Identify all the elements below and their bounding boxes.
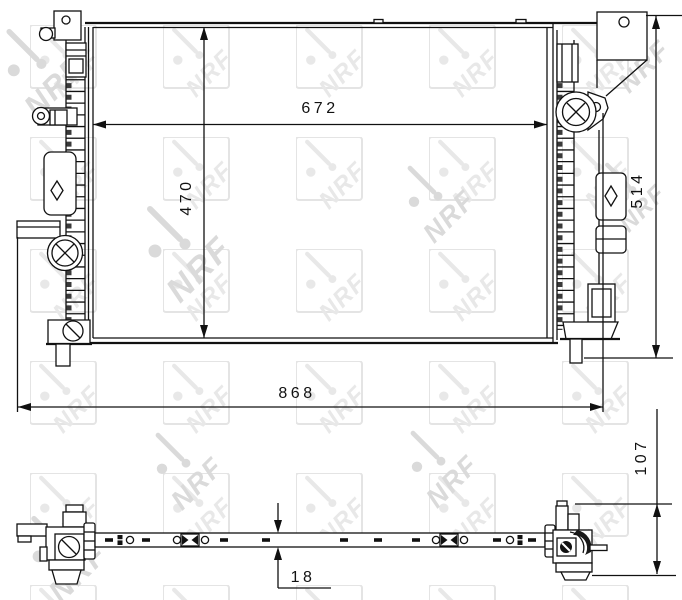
inlet-port [48, 236, 83, 271]
watermark-layer [0, 0, 682, 600]
dim-overall-width-label: 868 [278, 385, 315, 402]
dim-core-height-label: 470 [178, 178, 195, 215]
mounting-bracket-mid-right [596, 173, 626, 220]
mounting-bracket-lower-right [596, 226, 626, 253]
left-panel [44, 152, 76, 215]
mounting-bracket-lower-left [17, 221, 60, 238]
dim-core-depth-label: 18 [291, 569, 316, 586]
dim-overall-depth-label: 107 [633, 438, 650, 475]
clamp-detail [557, 44, 578, 82]
dim-core-width-label: 672 [301, 100, 338, 117]
core-bar [95, 533, 545, 547]
technical-drawing-canvas: NRF [0, 0, 682, 600]
dim-overall-height-label: 514 [629, 171, 646, 208]
mounting-bracket-mid-left [33, 108, 78, 126]
bleed-cap [66, 43, 86, 77]
radiator-drawing: NRF [0, 0, 682, 600]
